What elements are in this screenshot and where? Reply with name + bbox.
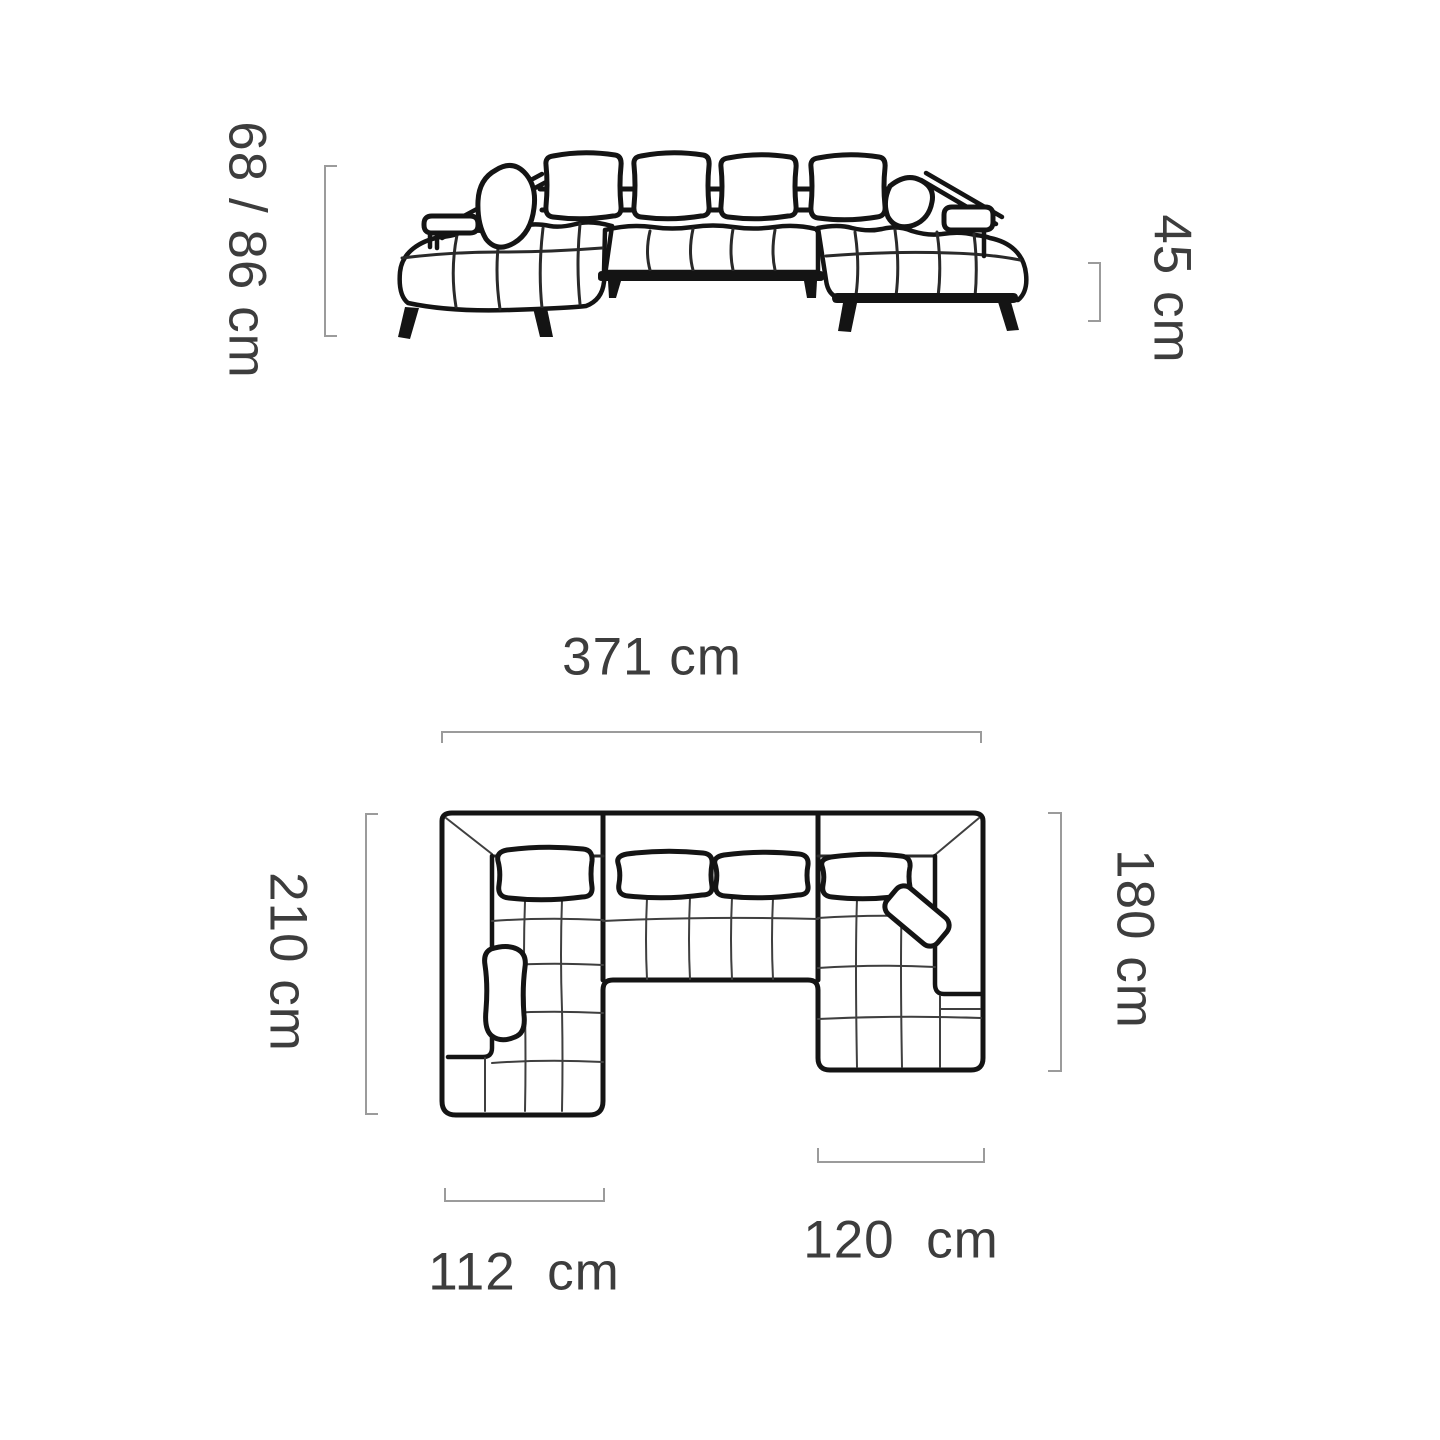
right-chaise-leg-right	[998, 302, 1019, 331]
dim-bracket-depth-left	[365, 813, 378, 1115]
plan-arm-pillow	[485, 947, 526, 1040]
dim-bracket-front-seat-height	[1088, 262, 1101, 322]
left-armrest	[424, 216, 478, 248]
right-armrest	[944, 207, 993, 256]
dim-label-chaise-left: 112 cm	[428, 1246, 620, 1299]
diagram-page: 68 / 86 cm 45 cm	[0, 0, 1440, 1440]
right-throw-pillow	[885, 178, 932, 227]
dim-bracket-chaise-left	[444, 1188, 605, 1202]
right-chaise-leg-left	[838, 303, 857, 332]
middle-seat	[598, 226, 824, 299]
left-throw-pillow	[478, 165, 535, 247]
left-chaise-leg-left	[398, 307, 419, 339]
dim-label-total-width: 371 cm	[562, 631, 742, 684]
dim-label-front-seat-height: 45 cm	[1146, 214, 1199, 363]
dim-label-chaise-right: 120 cm	[803, 1214, 999, 1267]
dim-label-depth-left: 210 cm	[262, 872, 315, 1052]
dim-bracket-chaise-right	[817, 1148, 985, 1163]
left-chaise-leg-right	[533, 308, 553, 337]
dim-bracket-total-width	[441, 731, 982, 743]
dim-bracket-depth-right	[1048, 812, 1062, 1072]
dim-label-front-height: 68 / 86 cm	[221, 121, 274, 378]
dim-bracket-front-height	[324, 165, 337, 337]
sofa-top-plan	[435, 805, 990, 1125]
plan-back-cushions	[498, 847, 910, 900]
middle-leg-left	[608, 281, 621, 298]
dim-label-depth-right: 180 cm	[1109, 849, 1162, 1029]
sofa-front-elevation	[390, 140, 1040, 350]
middle-leg-right	[804, 281, 817, 298]
